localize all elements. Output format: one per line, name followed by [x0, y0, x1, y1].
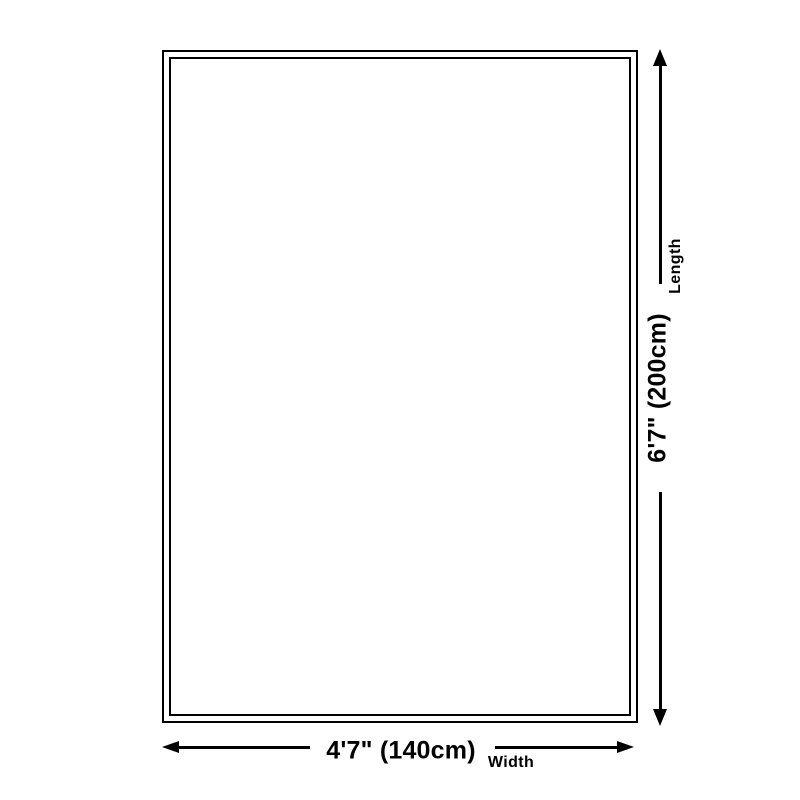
width-value: 4'7" (140cm): [326, 739, 475, 764]
length-value: 6'7" (200cm): [646, 313, 671, 462]
rug-outer-border: [162, 50, 638, 723]
length-arrow-upper-segment: [659, 60, 662, 284]
arrow-right-icon: [617, 741, 634, 753]
length-arrow-lower-segment: [659, 492, 662, 710]
width-arrow-right-segment: [495, 746, 619, 749]
dimension-diagram: Length 6'7" (200cm) 4'7" (140cm) Width: [0, 0, 800, 800]
width-label: Width: [488, 755, 534, 771]
rug-inner-border: [169, 57, 631, 716]
length-label: Length: [668, 238, 684, 294]
arrow-down-icon: [653, 709, 667, 726]
width-arrow-left-segment: [174, 746, 310, 749]
